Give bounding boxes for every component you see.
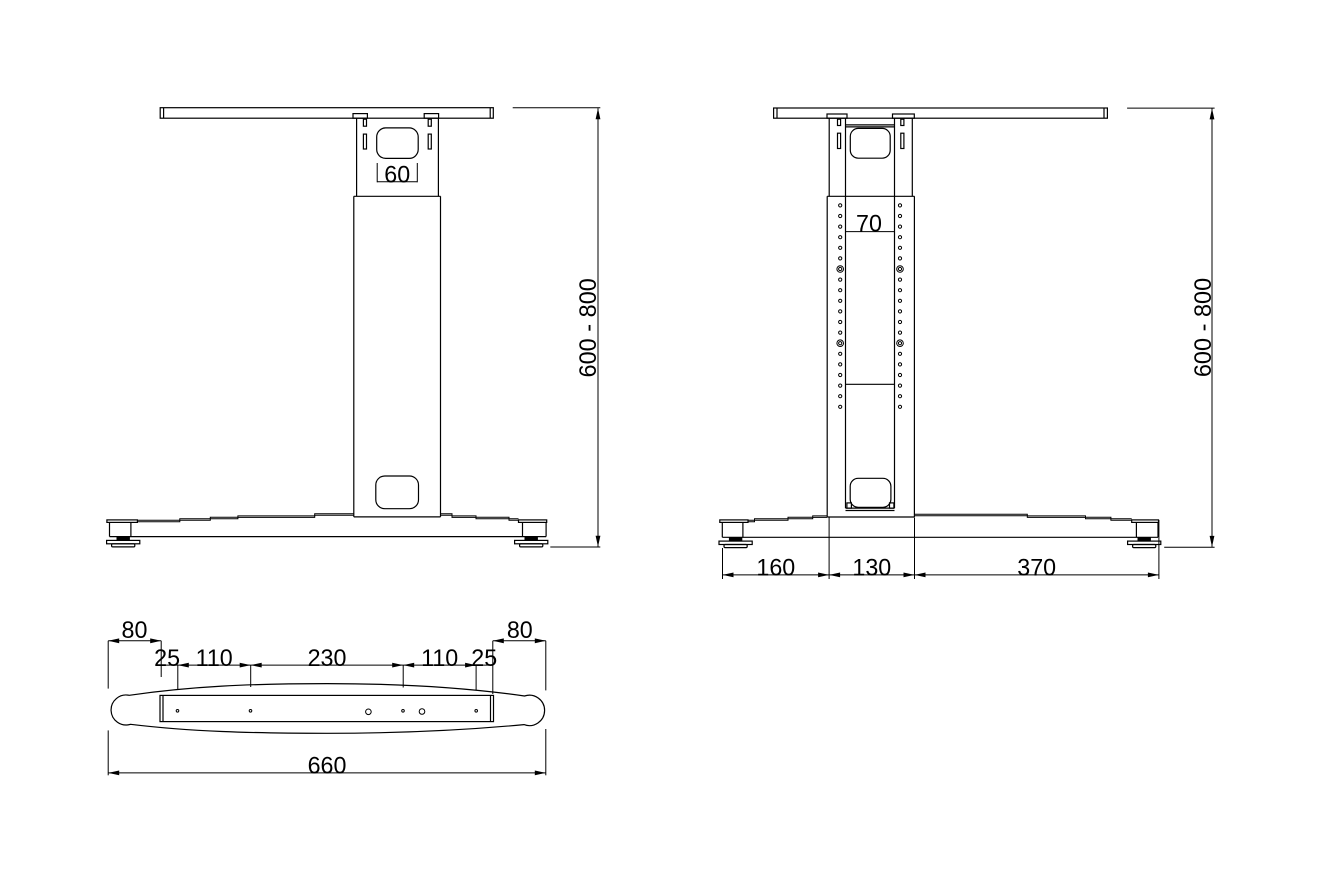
svg-text:80: 80 — [122, 618, 148, 644]
svg-text:70: 70 — [856, 211, 882, 237]
svg-text:110: 110 — [196, 645, 233, 671]
svg-text:600 - 800: 600 - 800 — [1190, 278, 1217, 377]
svg-text:370: 370 — [1017, 555, 1056, 581]
svg-text:660: 660 — [308, 753, 347, 779]
svg-text:230: 230 — [308, 645, 347, 671]
svg-text:60: 60 — [384, 162, 410, 188]
svg-text:160: 160 — [756, 555, 795, 581]
svg-text:110: 110 — [421, 645, 458, 671]
svg-text:600 - 800: 600 - 800 — [575, 278, 602, 377]
svg-text:130: 130 — [852, 555, 891, 581]
svg-text:25: 25 — [154, 645, 180, 671]
svg-text:80: 80 — [507, 618, 533, 644]
